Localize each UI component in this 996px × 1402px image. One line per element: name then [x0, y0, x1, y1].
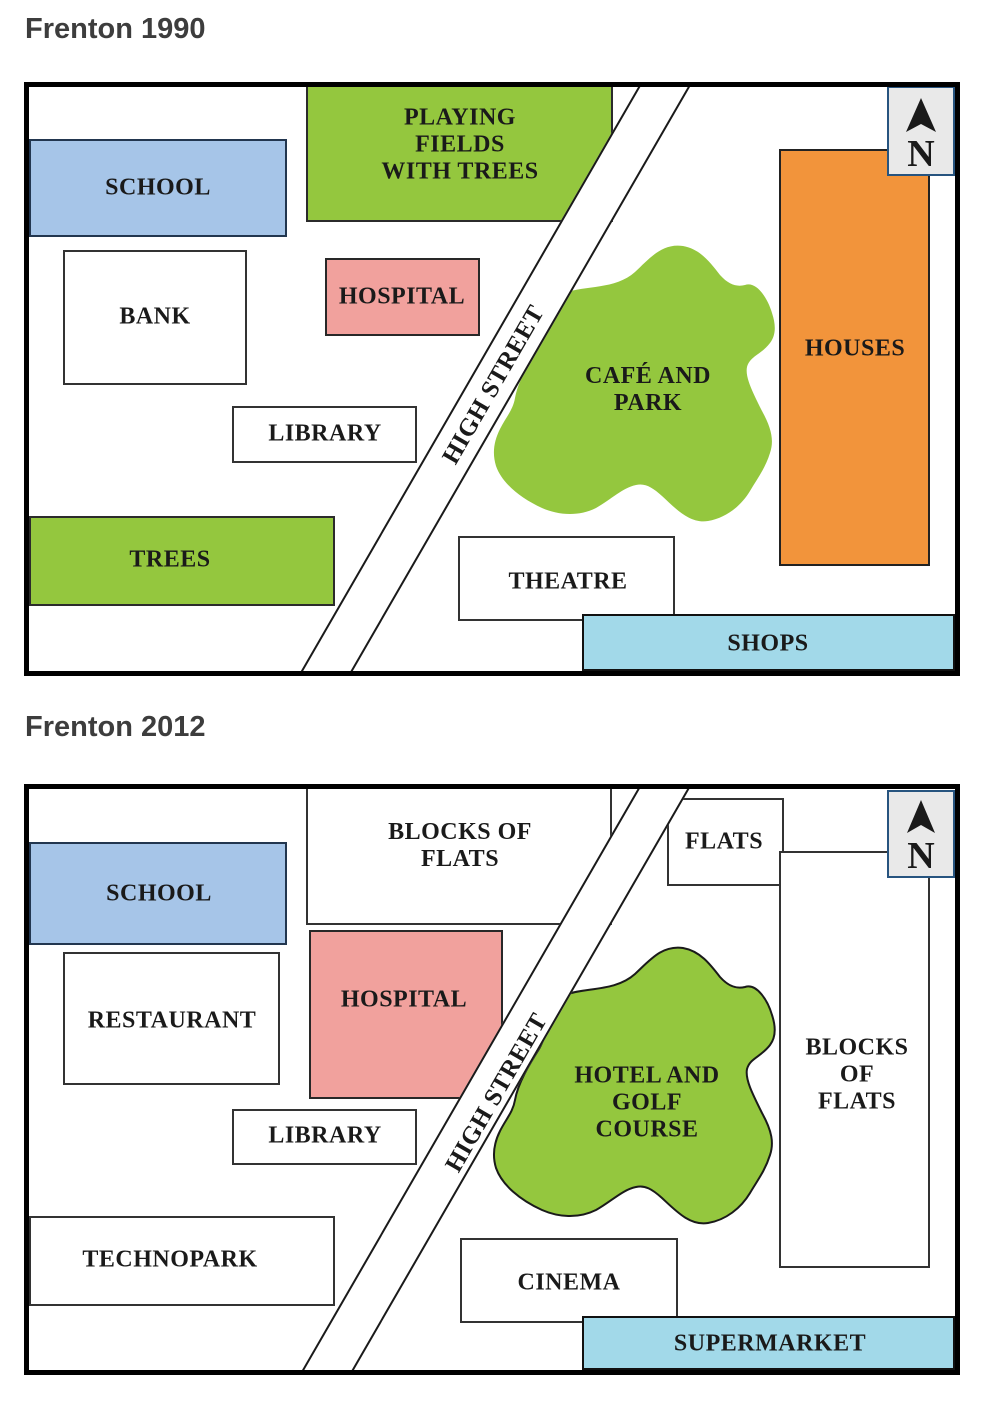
- svg-text:N: N: [907, 133, 934, 174]
- svg-text:N: N: [907, 835, 934, 876]
